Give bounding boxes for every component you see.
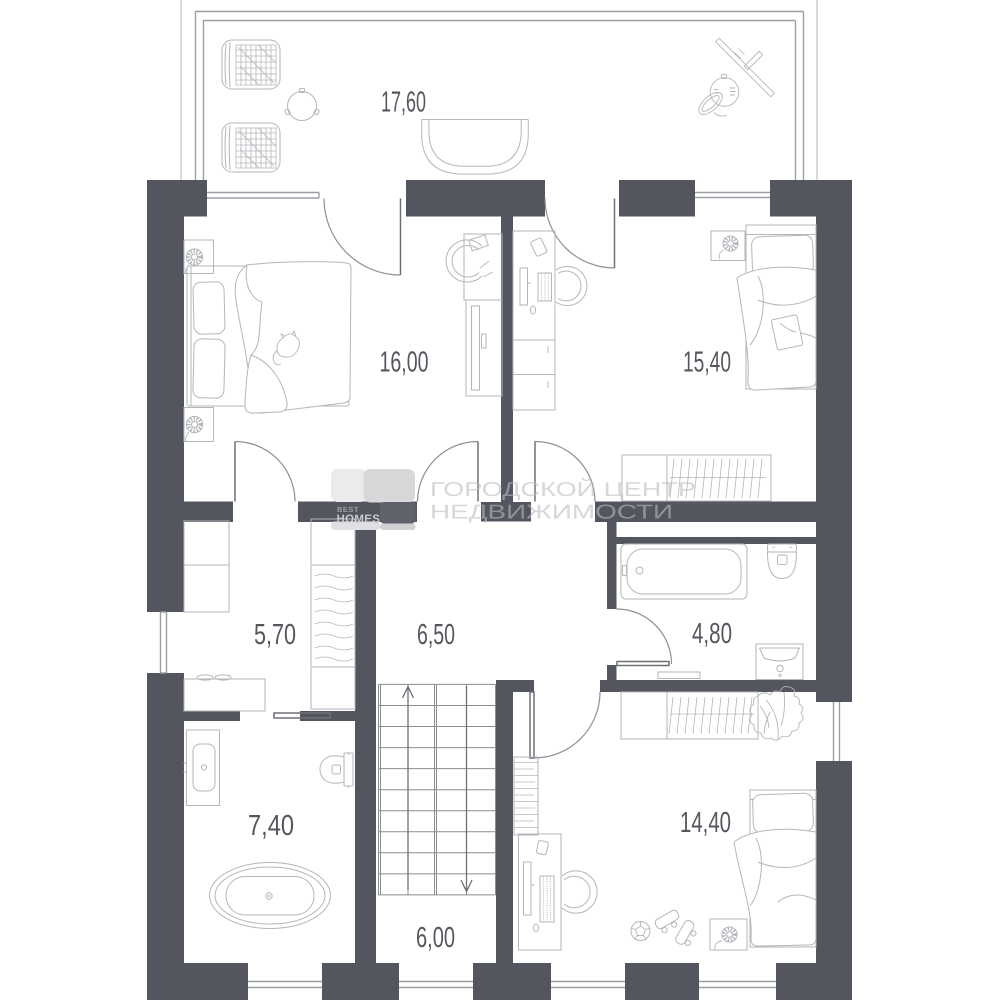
svg-text:ГОРОДСКОЙ ЦЕНТР: ГОРОДСКОЙ ЦЕНТР — [430, 477, 696, 501]
svg-text:HOMES: HOMES — [337, 514, 381, 526]
svg-text:17,60: 17,60 — [381, 87, 426, 119]
svg-text:НЕДВИЖИМОСТИ: НЕДВИЖИМОСТИ — [430, 502, 673, 524]
svg-text:7,40: 7,40 — [248, 810, 294, 842]
svg-text:15,40: 15,40 — [683, 347, 731, 379]
svg-text:4,80: 4,80 — [692, 618, 732, 650]
svg-text:14,40: 14,40 — [680, 807, 731, 839]
svg-text:6,50: 6,50 — [417, 619, 455, 651]
svg-text:6,00: 6,00 — [416, 922, 455, 954]
svg-text:5,70: 5,70 — [254, 619, 296, 651]
svg-text:16,00: 16,00 — [380, 347, 429, 379]
